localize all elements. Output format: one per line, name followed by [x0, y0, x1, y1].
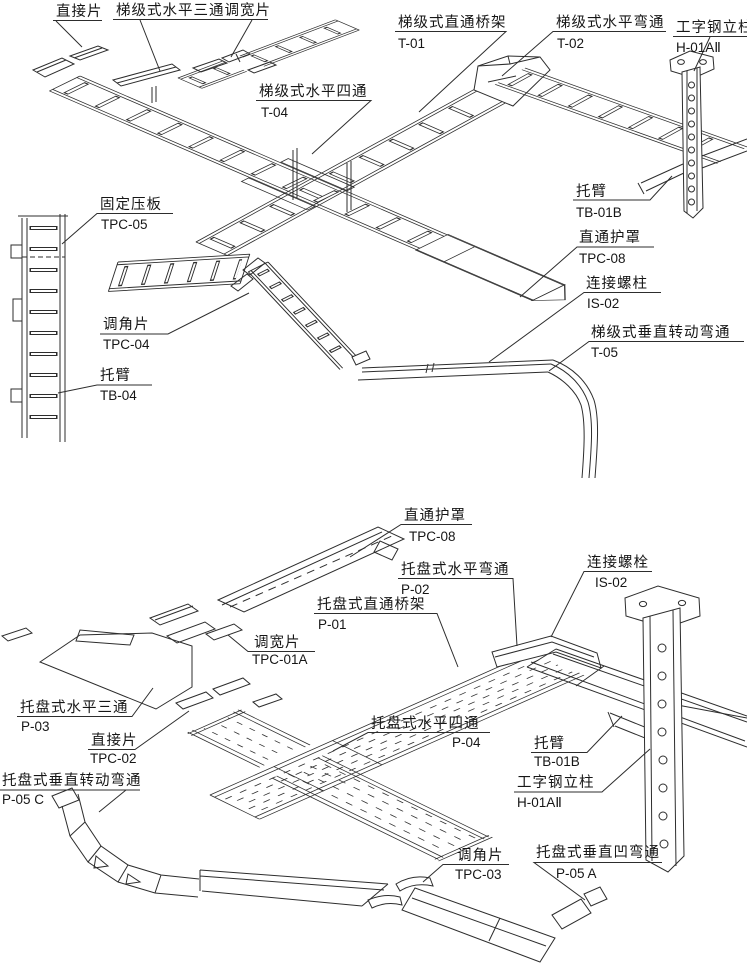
label-text: 工字钢立柱	[676, 19, 747, 36]
label-code: T-01	[398, 36, 425, 51]
label-angle-adjuster-tpc04: 调角片 TPC-04	[100, 293, 249, 352]
connector-piece-part	[70, 46, 108, 60]
leader-line	[549, 342, 744, 372]
vertical-turning-bend-run	[352, 351, 598, 478]
label-code: TPC-01A	[252, 652, 308, 667]
label-code: T-05	[591, 345, 618, 360]
label-support-arm-tb01b: 托臂 TB-01B	[531, 716, 622, 769]
label-text: 梯级式直通桥架	[398, 14, 507, 31]
ladder-assembly-drawing	[11, 20, 747, 478]
label-code: TPC-08	[579, 251, 626, 266]
bolt-hole	[639, 601, 646, 606]
label-width-adjuster-tpc01a: 调宽片 TPC-01A	[228, 634, 315, 667]
label-support-arm-tb04: 托臂 TB-04	[58, 367, 152, 403]
label-code: TPC-04	[103, 337, 150, 352]
label-horizontal-cross-t04: 梯级式水平四通 T-04	[256, 83, 371, 154]
drawing-page: 直接片 梯级式水平三通调宽片 梯级式直通桥架 T-01 梯级式水平弯通 T-02…	[0, 0, 747, 967]
label-text: 托盘式直通桥架	[317, 595, 426, 613]
label-code: TPC-05	[101, 217, 148, 232]
i-beam-column-part	[670, 51, 714, 218]
label-text: 直通护罩	[579, 229, 641, 246]
label-vertical-concave-bend-p05a: 托盘式垂直凹弯通 P-05 A	[534, 843, 662, 900]
label-text: 梯级式水平弯通	[556, 14, 665, 31]
steep-ladder-piece	[248, 262, 359, 370]
label-code: P-01	[318, 617, 347, 632]
wall-notch	[13, 299, 22, 321]
label-connector-piece-tpc02: 直接片 TPC-02	[88, 711, 189, 766]
end-channel-piece	[33, 58, 74, 77]
label-text: 工字钢立柱	[517, 774, 595, 791]
tee-branch-ladder-1	[178, 61, 247, 88]
label-text: 调角片	[457, 847, 504, 864]
vertical-concave-bend-part	[402, 887, 607, 962]
leader-line	[113, 20, 268, 72]
label-code: T-02	[557, 36, 584, 51]
label-text: 连接螺栓	[587, 554, 649, 571]
bolt-hole	[678, 600, 685, 605]
straight-cover-part	[416, 234, 565, 300]
label-code: IS-02	[595, 575, 627, 590]
label-text: 调宽片	[254, 634, 301, 651]
label-code: IS-02	[587, 296, 619, 311]
loose-piece	[2, 628, 32, 641]
width-adjust-piece	[150, 604, 198, 625]
label-code: P-02	[401, 582, 430, 597]
label-code: P-05 A	[556, 866, 597, 881]
label-text: 托臂	[534, 735, 565, 752]
label-horizontal-cross-p04: 托盘式水平四通 P-04	[333, 714, 490, 751]
label-text: 梯级式垂直转动弯通	[591, 324, 731, 341]
label-text: 托盘式垂直转动弯通	[2, 771, 142, 789]
flat-tray-strip	[200, 870, 388, 906]
bolt-hole	[700, 60, 707, 65]
angle-adjust-piece-2	[368, 896, 402, 908]
label-text: 托臂	[576, 183, 607, 200]
label-support-arm-tb01b: 托臂 TB-01B	[573, 176, 672, 220]
bottom-drawing-labels: 直通护罩 TPC-08 托盘式水平弯通 P-02 托盘式直通桥架 P-01 连接…	[0, 507, 662, 900]
tee-branch-ladder-2	[240, 20, 359, 67]
label-text: 连接螺柱	[586, 275, 648, 292]
label-code: H-01AⅡ	[517, 795, 562, 810]
clamp-plate-part	[11, 245, 22, 258]
label-code: TB-04	[100, 388, 137, 403]
label-text: 直接片	[91, 732, 138, 749]
label-text: 托盘式水平四通	[371, 714, 480, 732]
label-code: P-04	[452, 735, 481, 750]
label-horizontal-tee-p03: 托盘式水平三通 P-03	[17, 688, 153, 734]
cable-tray-diagram: 直接片 梯级式水平三通调宽片 梯级式直通桥架 T-01 梯级式水平弯通 T-02…	[0, 0, 747, 967]
label-vertical-turning-bend-p05c: 托盘式垂直转动弯通 P-05 C	[0, 771, 142, 812]
connector-piece-part	[176, 692, 213, 709]
label-text: 托盘式水平三通	[20, 698, 129, 716]
label-straight-tray-p01: 托盘式直通桥架 P-01	[314, 595, 458, 667]
label-text: 托盘式垂直凹弯通	[536, 843, 660, 861]
label-tee-width-adjuster: 梯级式水平三通调宽片	[113, 2, 271, 71]
label-text: 直接片	[56, 3, 103, 20]
label-vertical-turning-bend-t05: 梯级式垂直转动弯通 T-05	[549, 324, 744, 371]
label-code: P-03	[21, 719, 50, 734]
leader-line	[534, 863, 662, 901]
tray-hatching	[288, 761, 476, 851]
connector-piece-part	[253, 694, 282, 707]
label-angle-adjuster-tpc03: 调角片 TPC-03	[423, 847, 509, 882]
label-code: H-01AⅡ	[676, 40, 721, 55]
cross-branch-lower	[270, 755, 492, 861]
mid-ladder-piece	[108, 254, 249, 291]
bolt-hole	[678, 60, 685, 65]
label-code: TB-01B	[534, 754, 580, 769]
vertical-turning-bend-part	[52, 788, 199, 897]
label-text: 调角片	[103, 316, 150, 333]
leader-line	[53, 21, 102, 48]
arm-bracket-part	[11, 389, 22, 402]
label-code: T-04	[261, 105, 289, 120]
label-text: 梯级式水平三通调宽片	[116, 2, 271, 19]
label-code: TPC-02	[90, 751, 137, 766]
main-tray-run	[210, 651, 584, 819]
label-code: P-05 C	[2, 792, 44, 807]
label-code: TPC-03	[455, 867, 502, 882]
label-fixing-clamp-plate-tpc05: 固定压板 TPC-05	[62, 195, 173, 244]
label-code: TPC-08	[409, 529, 456, 544]
connector-piece-part	[213, 678, 250, 695]
label-text: 梯级式水平四通	[259, 83, 368, 100]
label-text: 托盘式水平弯通	[401, 560, 510, 578]
horizontal-tee-outline	[40, 630, 192, 709]
label-connector-piece: 直接片	[53, 3, 103, 47]
label-code: TB-01B	[576, 205, 622, 220]
label-text: 托臂	[100, 367, 131, 384]
strip-end-cap	[352, 351, 370, 365]
vertical-ladder-strip	[11, 214, 68, 442]
cross-branch-upper	[186, 709, 312, 768]
top-drawing-labels: 直接片 梯级式水平三通调宽片 梯级式直通桥架 T-01 梯级式水平弯通 T-02…	[53, 2, 747, 403]
i-beam-column-part	[625, 586, 700, 872]
column-shaft	[682, 67, 703, 218]
descending-tray-run	[527, 649, 747, 747]
label-text: 直通护罩	[404, 507, 466, 524]
label-text: 固定压板	[100, 195, 162, 213]
label-straight-cover-tpc08: 直通护罩 TPC-08	[350, 507, 472, 557]
